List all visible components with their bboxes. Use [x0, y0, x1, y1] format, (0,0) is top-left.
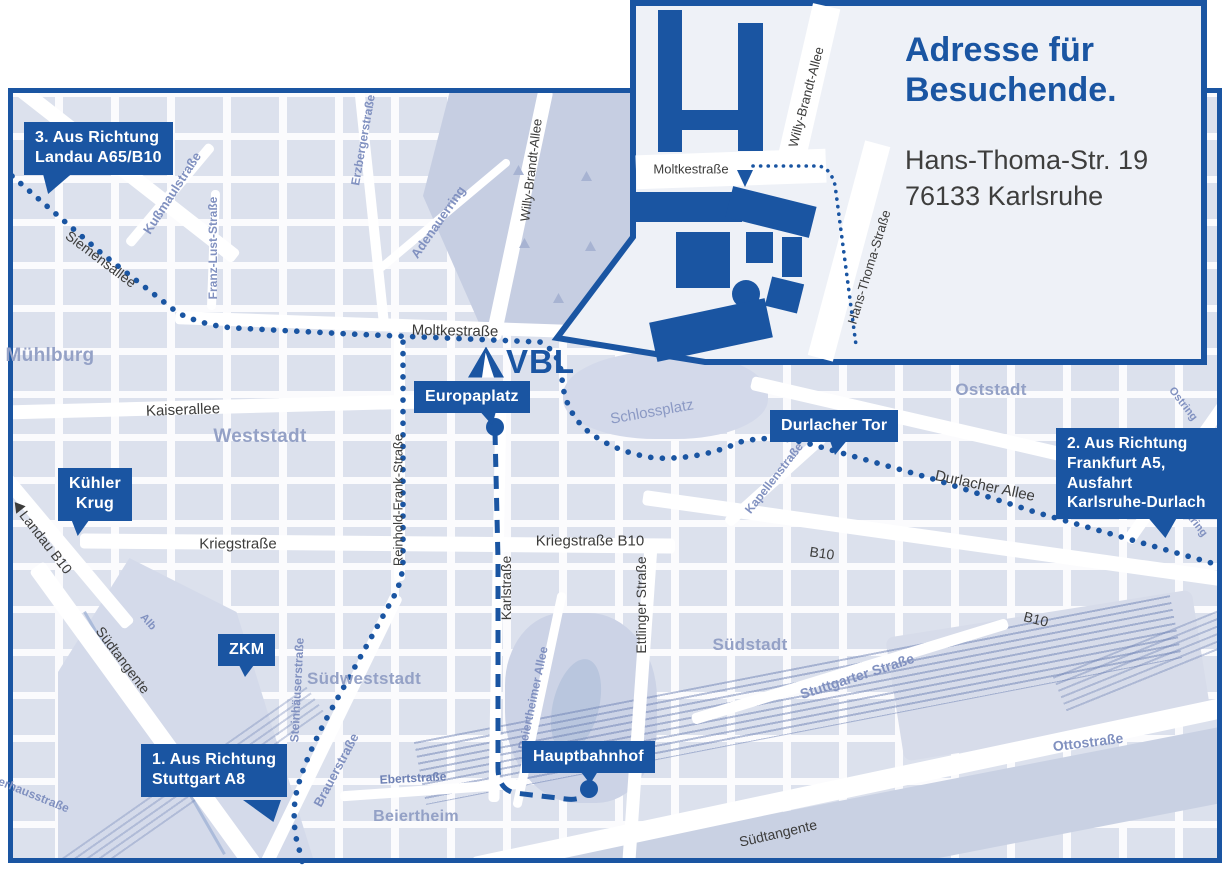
schlossgarten-park [563, 351, 768, 439]
inset-address-line1: Hans-Thoma-Str. 19 [905, 143, 1148, 179]
callout-route2: 2. Aus Richtung Frankfurt A5, Ausfahrt K… [1056, 428, 1217, 519]
callout-line: Kühler [69, 474, 121, 494]
callout-line: Krug [69, 494, 121, 514]
callout-line: Europaplatz [425, 387, 519, 407]
callout-line: Stuttgart A8 [152, 770, 276, 790]
callout-europaplatz: Europaplatz [414, 381, 530, 413]
callout-line: Frankfurt A5, [1067, 454, 1206, 474]
callout-line: Karlsruhe-Durlach [1067, 493, 1206, 513]
inset-building [680, 110, 740, 130]
vbl-logo: VBL [468, 343, 575, 381]
callout-route1: 1. Aus Richtung Stuttgart A8 [141, 744, 287, 797]
street-label: B10 [809, 543, 836, 562]
inset-building [634, 192, 742, 222]
street-label: Kaiserallee [146, 400, 221, 420]
callout-kuehler-krug: Kühler Krug [58, 468, 132, 521]
callout-line: 1. Aus Richtung [152, 750, 276, 770]
street-label: Moltkestraße [412, 322, 499, 341]
vbl-pyramid-icon [468, 347, 504, 378]
callout-route3: 3. Aus Richtung Landau A65/B10 [24, 122, 173, 175]
callout-line: Ausfahrt [1067, 474, 1206, 494]
inset-building [738, 23, 763, 151]
callout-line: 2. Aus Richtung [1067, 434, 1206, 454]
district-label: Südstadt [712, 635, 787, 655]
city-map-page: Moltkestraße Kaiserallee Kriegstraße Kri… [0, 0, 1230, 874]
inset-building [746, 232, 773, 263]
inset-building [676, 232, 730, 288]
inset-address-line2: 76133 Karlsruhe [905, 179, 1148, 215]
street-label: Karlstraße [498, 556, 514, 621]
inset-title: Adresse für Besuchende. [905, 30, 1165, 110]
callout-hauptbahnhof: Hauptbahnhof [522, 741, 655, 773]
hauptbahnhof-marker [580, 780, 598, 798]
district-label: Weststadt [213, 426, 306, 448]
callout-line: Landau A65/B10 [35, 148, 162, 168]
street-label: Kriegstraße B10 [536, 533, 644, 550]
street-label: Ettlinger Straße [633, 556, 649, 653]
district-label: Oststadt [955, 380, 1026, 400]
inset-building [658, 10, 682, 152]
vbl-logo-text: VBL [506, 343, 575, 381]
inset-address: Hans-Thoma-Str. 19 76133 Karlsruhe [905, 143, 1148, 214]
district-label: Mühlburg [6, 345, 95, 367]
callout-line: 3. Aus Richtung [35, 128, 162, 148]
district-label: Südweststadt [307, 669, 421, 689]
callout-line: ZKM [229, 640, 264, 660]
street-label: Kriegstraße [199, 536, 277, 553]
callout-line: Hauptbahnhof [533, 747, 644, 767]
callout-line: Durlacher Tor [781, 416, 887, 436]
street-label: Reinhold-Frank-Straße [391, 434, 406, 566]
inset-building [782, 237, 802, 277]
street-label: Franz-Lust-Straße [206, 197, 220, 300]
inset-street-label: Moltkestraße [653, 162, 728, 177]
district-label: Beiertheim [373, 808, 459, 826]
callout-zkm: ZKM [218, 634, 275, 666]
callout-durlacher-tor: Durlacher Tor [770, 410, 898, 442]
